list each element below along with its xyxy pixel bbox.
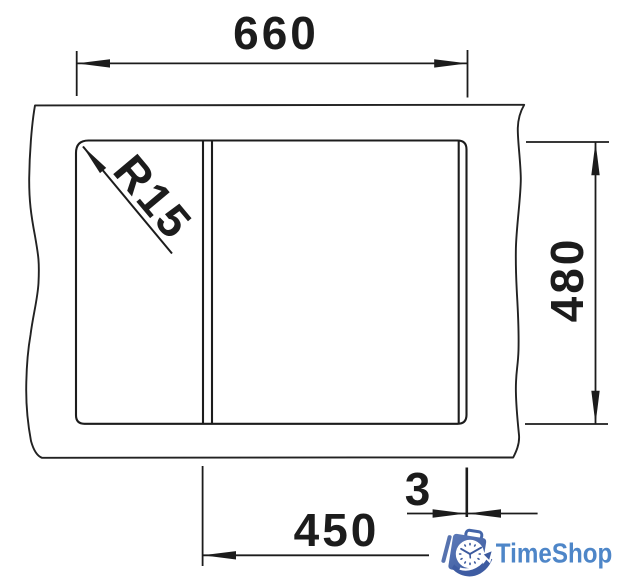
svg-text:3: 3 xyxy=(405,463,434,515)
svg-text:TimeShop: TimeShop xyxy=(496,539,612,569)
svg-text:450: 450 xyxy=(294,504,380,556)
svg-text:480: 480 xyxy=(541,237,593,323)
svg-text:660: 660 xyxy=(233,7,319,59)
